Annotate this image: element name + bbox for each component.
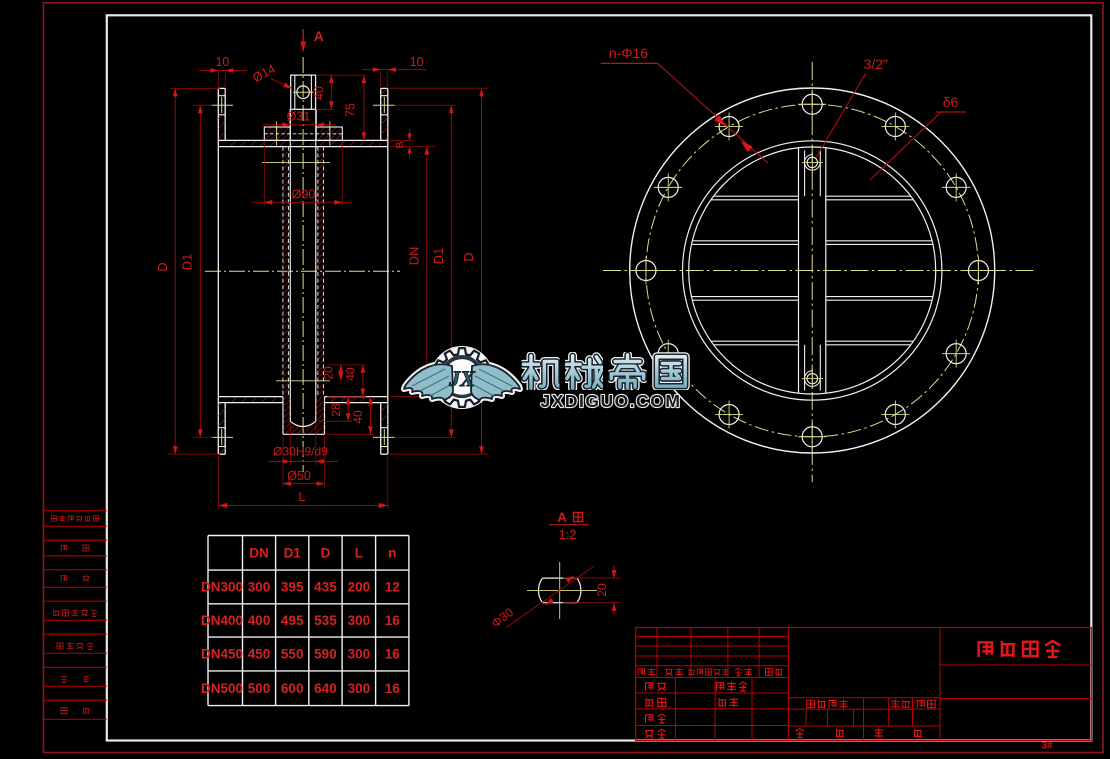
svg-text:300: 300: [248, 579, 271, 594]
svg-text:16: 16: [385, 613, 401, 628]
svg-text:JXDIGUO.COM: JXDIGUO.COM: [541, 391, 682, 411]
svg-text:Ø90: Ø90: [292, 187, 316, 201]
svg-text:DN500: DN500: [201, 681, 243, 696]
svg-text:435: 435: [314, 579, 337, 594]
svg-text:DN: DN: [406, 247, 421, 266]
svg-text:640: 640: [314, 681, 337, 696]
svg-text:300: 300: [348, 613, 371, 628]
svg-text:D: D: [321, 546, 331, 561]
svg-text:n-Φ16: n-Φ16: [609, 45, 648, 61]
svg-text:16: 16: [385, 681, 401, 696]
svg-text:40: 40: [312, 86, 326, 100]
svg-text:3#: 3#: [1041, 741, 1053, 752]
svg-text:495: 495: [281, 613, 304, 628]
svg-text:450: 450: [248, 647, 271, 662]
svg-text:A: A: [557, 510, 567, 525]
svg-text:550: 550: [281, 647, 304, 662]
svg-text:20: 20: [322, 366, 336, 380]
svg-text:Ø31: Ø31: [287, 110, 311, 124]
svg-text:16: 16: [385, 647, 401, 662]
svg-text:400: 400: [248, 613, 271, 628]
svg-text:500: 500: [248, 681, 271, 696]
svg-text:200: 200: [348, 579, 371, 594]
svg-text:A: A: [314, 28, 324, 44]
svg-text:590: 590: [314, 647, 337, 662]
svg-text:3/2": 3/2": [864, 56, 888, 72]
svg-text:10: 10: [410, 55, 424, 69]
svg-text:40: 40: [343, 367, 357, 381]
svg-text:600: 600: [281, 681, 304, 696]
svg-text:Ø50: Ø50: [287, 469, 311, 483]
svg-text:28: 28: [329, 403, 343, 417]
svg-text:n: n: [388, 546, 396, 561]
svg-text:395: 395: [281, 579, 304, 594]
svg-text:1:2: 1:2: [558, 527, 576, 542]
svg-text:D1: D1: [180, 254, 195, 271]
svg-text:300: 300: [348, 681, 371, 696]
svg-text:B: B: [394, 141, 406, 148]
svg-text:DN400: DN400: [201, 613, 243, 628]
svg-text:JX: JX: [448, 366, 476, 391]
svg-text:40: 40: [351, 410, 365, 424]
svg-text:D1: D1: [431, 248, 446, 265]
svg-text:10: 10: [215, 55, 229, 69]
svg-text:300: 300: [348, 647, 371, 662]
svg-text:DN450: DN450: [201, 647, 243, 662]
svg-text:DN300: DN300: [201, 579, 243, 594]
svg-text:75: 75: [344, 103, 358, 117]
svg-text:D: D: [155, 262, 170, 271]
svg-text:δ6: δ6: [943, 94, 959, 110]
svg-text:L: L: [298, 489, 305, 504]
svg-text:D: D: [461, 252, 476, 261]
svg-text:DN: DN: [249, 546, 269, 561]
svg-text:L: L: [355, 546, 363, 561]
svg-text:D1: D1: [284, 546, 302, 561]
svg-text:12: 12: [385, 579, 400, 594]
svg-text:Ø30H9/d9: Ø30H9/d9: [273, 445, 328, 459]
svg-text:20: 20: [595, 583, 609, 597]
svg-text:535: 535: [314, 613, 337, 628]
